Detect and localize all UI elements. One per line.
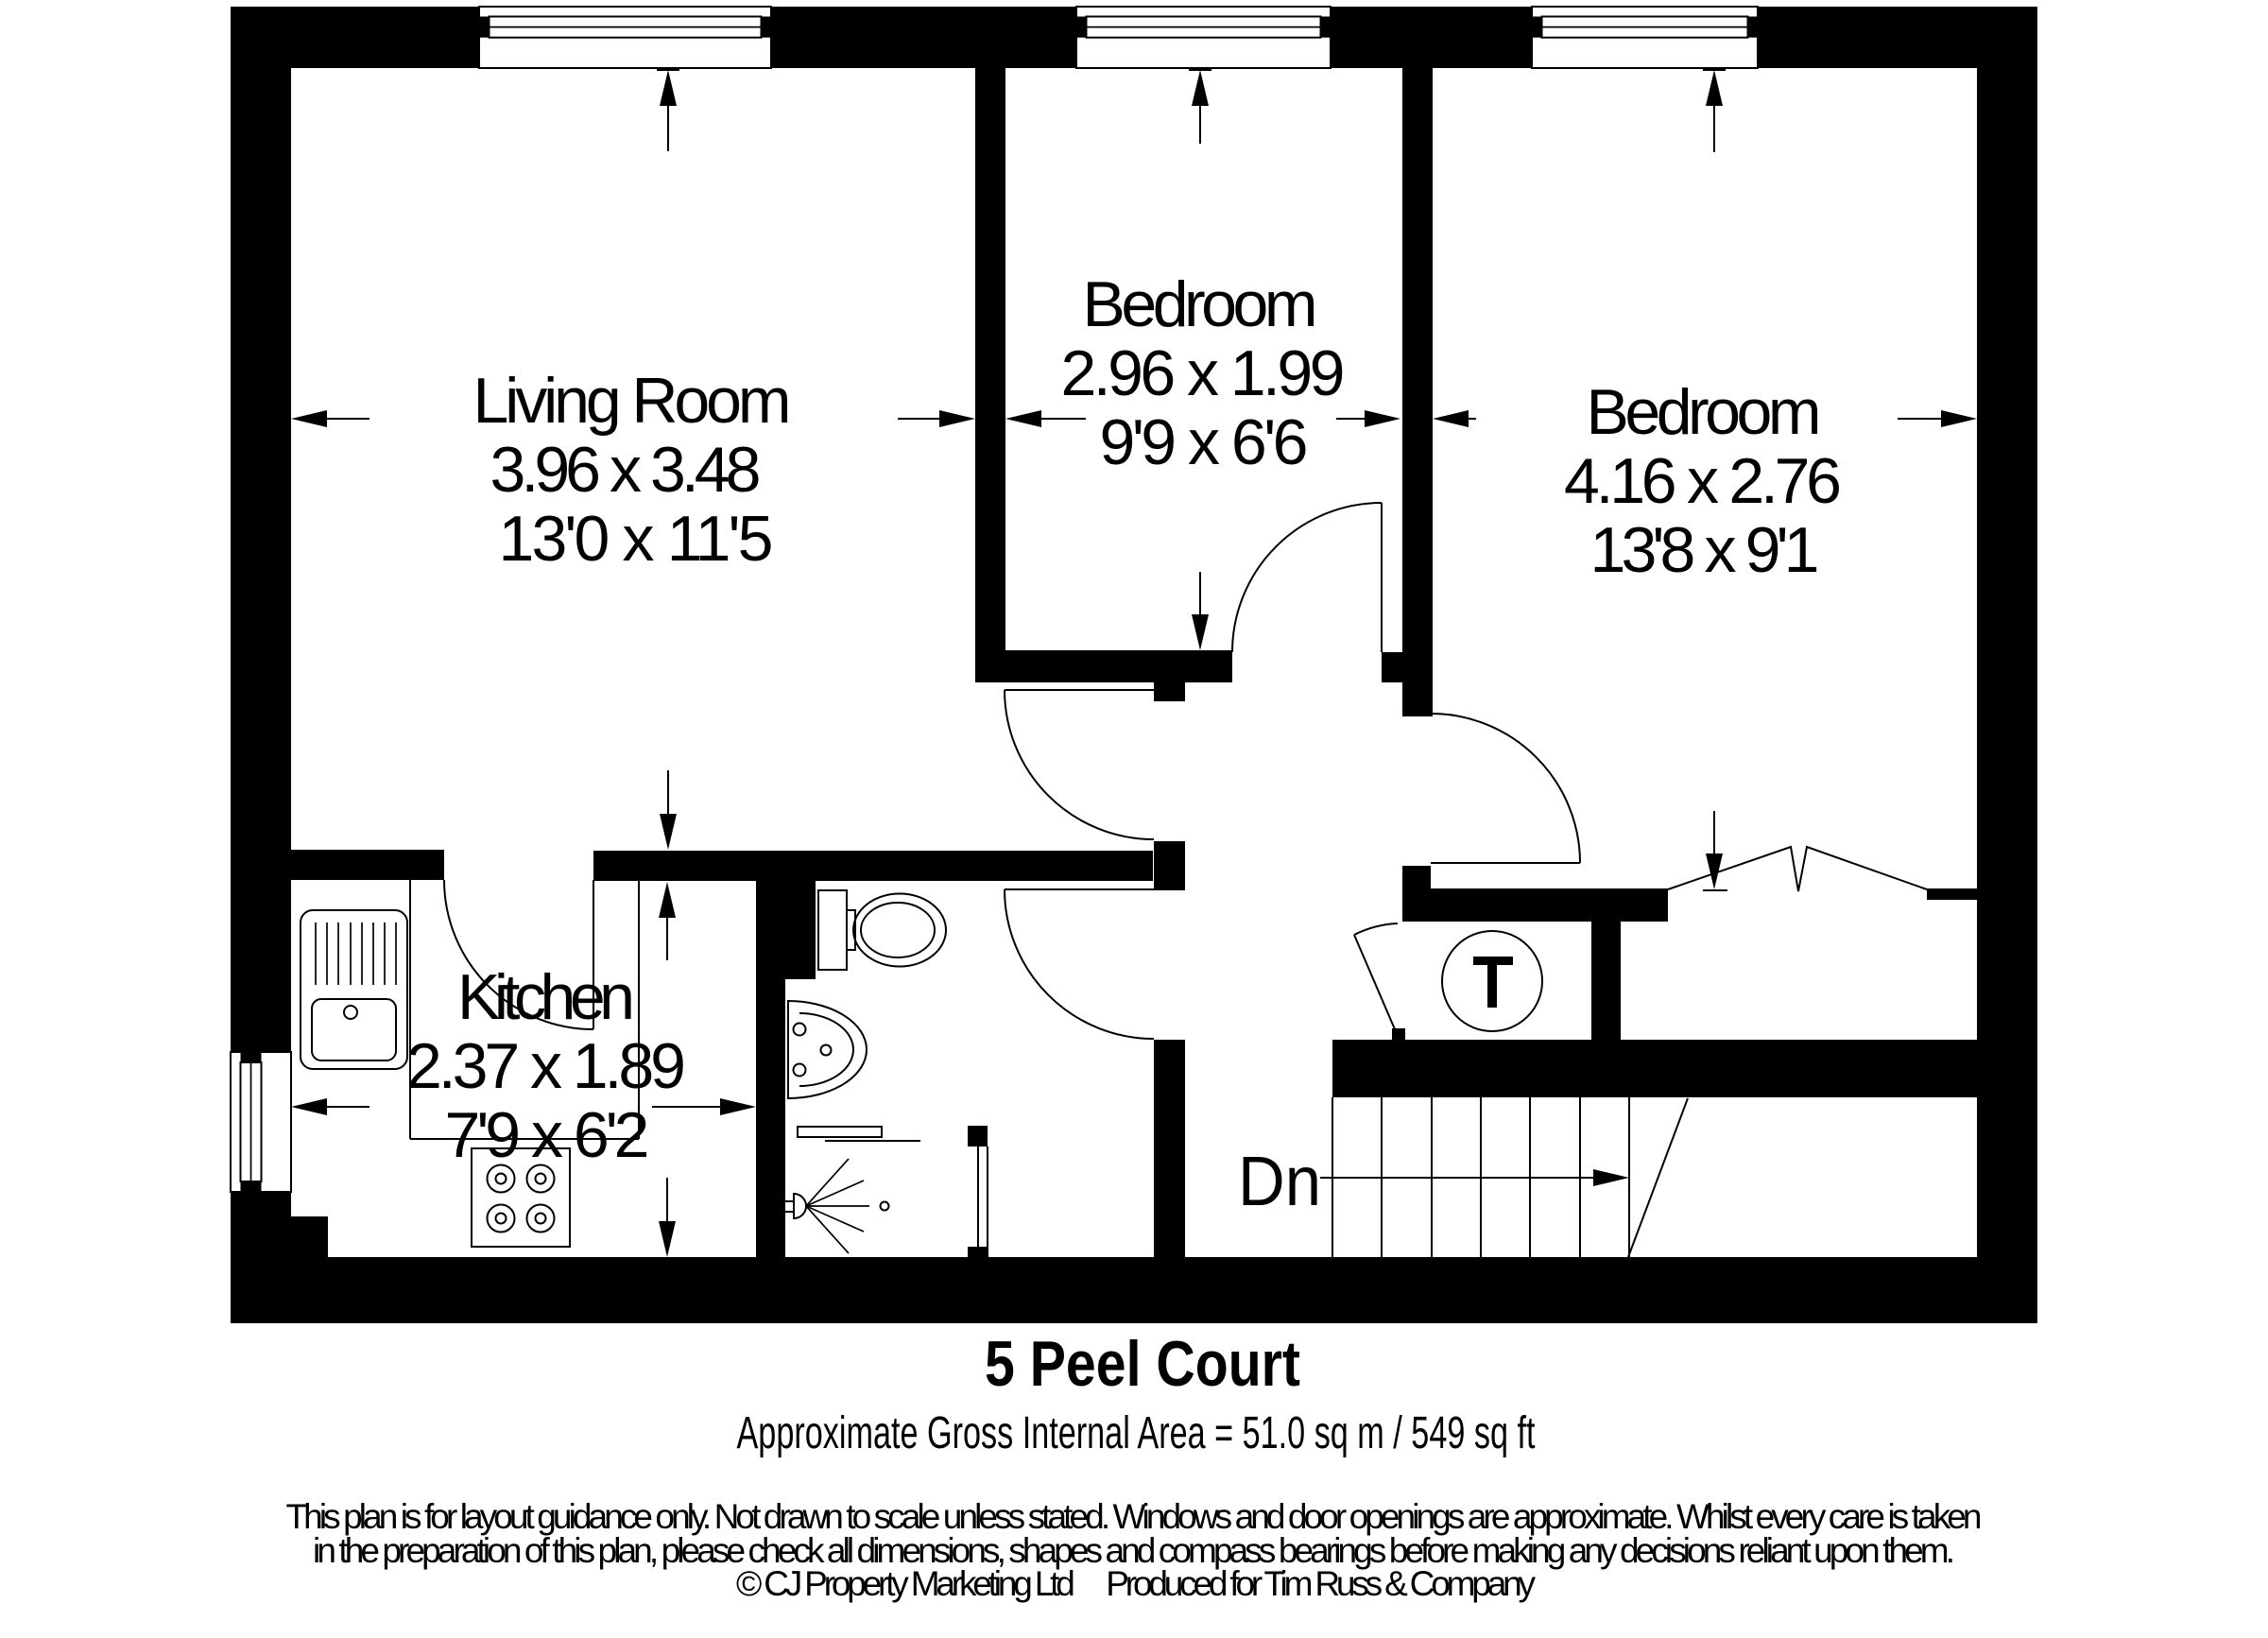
svg-text:Bedroom: Bedroom: [1587, 376, 1822, 448]
svg-text:© CJ Property Marketing Ltd: © CJ Property Marketing Ltd Produced for…: [736, 1564, 1536, 1603]
svg-text:13'8 x 9'1: 13'8 x 9'1: [1590, 514, 1820, 586]
svg-text:13'0 x 11'5: 13'0 x 11'5: [499, 503, 774, 575]
svg-text:Bedroom: Bedroom: [1083, 268, 1318, 340]
svg-text:Living Room: Living Room: [473, 365, 792, 437]
svg-text:2.96 x 1.99: 2.96 x 1.99: [1061, 337, 1346, 409]
svg-text:5 Peel Court: 5 Peel Court: [985, 1328, 1300, 1400]
svg-text:9'9 x 6'6: 9'9 x 6'6: [1100, 406, 1309, 478]
svg-text:This plan is for layout guidan: This plan is for layout guidance only. N…: [285, 1497, 1982, 1536]
svg-text:3.96 x 3.48: 3.96 x 3.48: [490, 434, 762, 506]
svg-text:7'9 x 6'2: 7'9 x 6'2: [445, 1099, 650, 1171]
svg-text:2.37 x 1.89: 2.37 x 1.89: [406, 1030, 686, 1102]
svg-text:Kitchen: Kitchen: [457, 961, 635, 1033]
svg-text:Dn: Dn: [1238, 1142, 1321, 1220]
svg-text:4.16 x 2.76: 4.16 x 2.76: [1564, 445, 1842, 517]
svg-text:Approximate Gross Internal Are: Approximate Gross Internal Area = 51.0 s…: [737, 1408, 1536, 1458]
